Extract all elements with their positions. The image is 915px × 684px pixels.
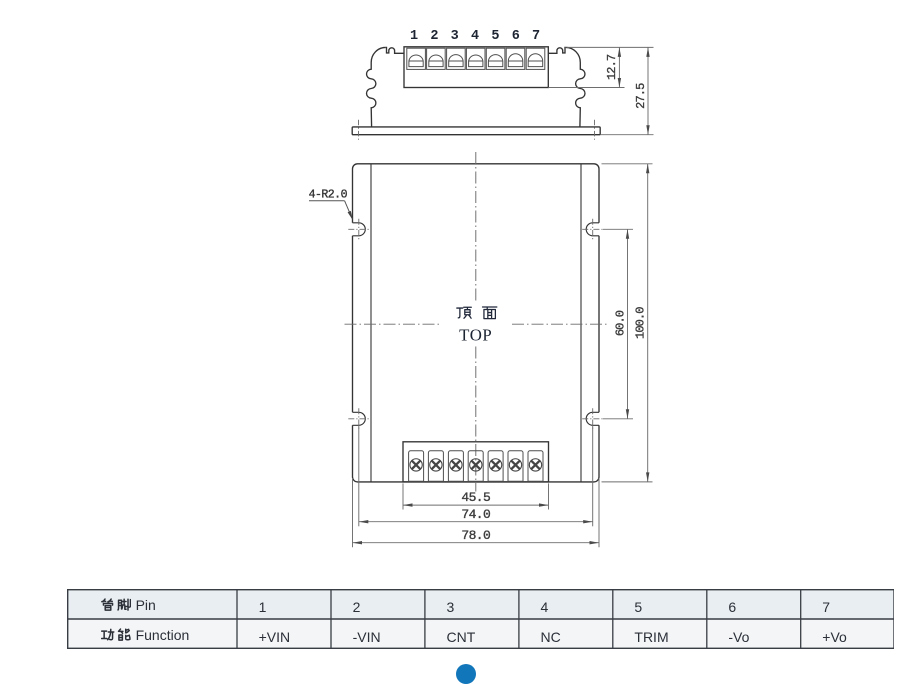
svg-text:7: 7: [532, 29, 540, 44]
svg-text:5: 5: [491, 29, 499, 44]
svg-text:45.5: 45.5: [461, 490, 490, 505]
svg-text:60.0: 60.0: [614, 310, 628, 336]
svg-text:27.5: 27.5: [634, 83, 648, 109]
svg-text:74.0: 74.0: [461, 507, 490, 522]
svg-text:TOP: TOP: [459, 325, 492, 344]
svg-text:4: 4: [471, 29, 479, 44]
svg-text:78.0: 78.0: [461, 528, 490, 543]
svg-text:1: 1: [410, 29, 418, 44]
svg-text:4-R2.0: 4-R2.0: [309, 188, 348, 201]
svg-text:3: 3: [451, 29, 459, 44]
svg-text:12.7: 12.7: [605, 54, 619, 80]
svg-text:100.0: 100.0: [633, 307, 647, 339]
svg-text:2: 2: [430, 29, 438, 44]
svg-text:6: 6: [512, 29, 520, 44]
